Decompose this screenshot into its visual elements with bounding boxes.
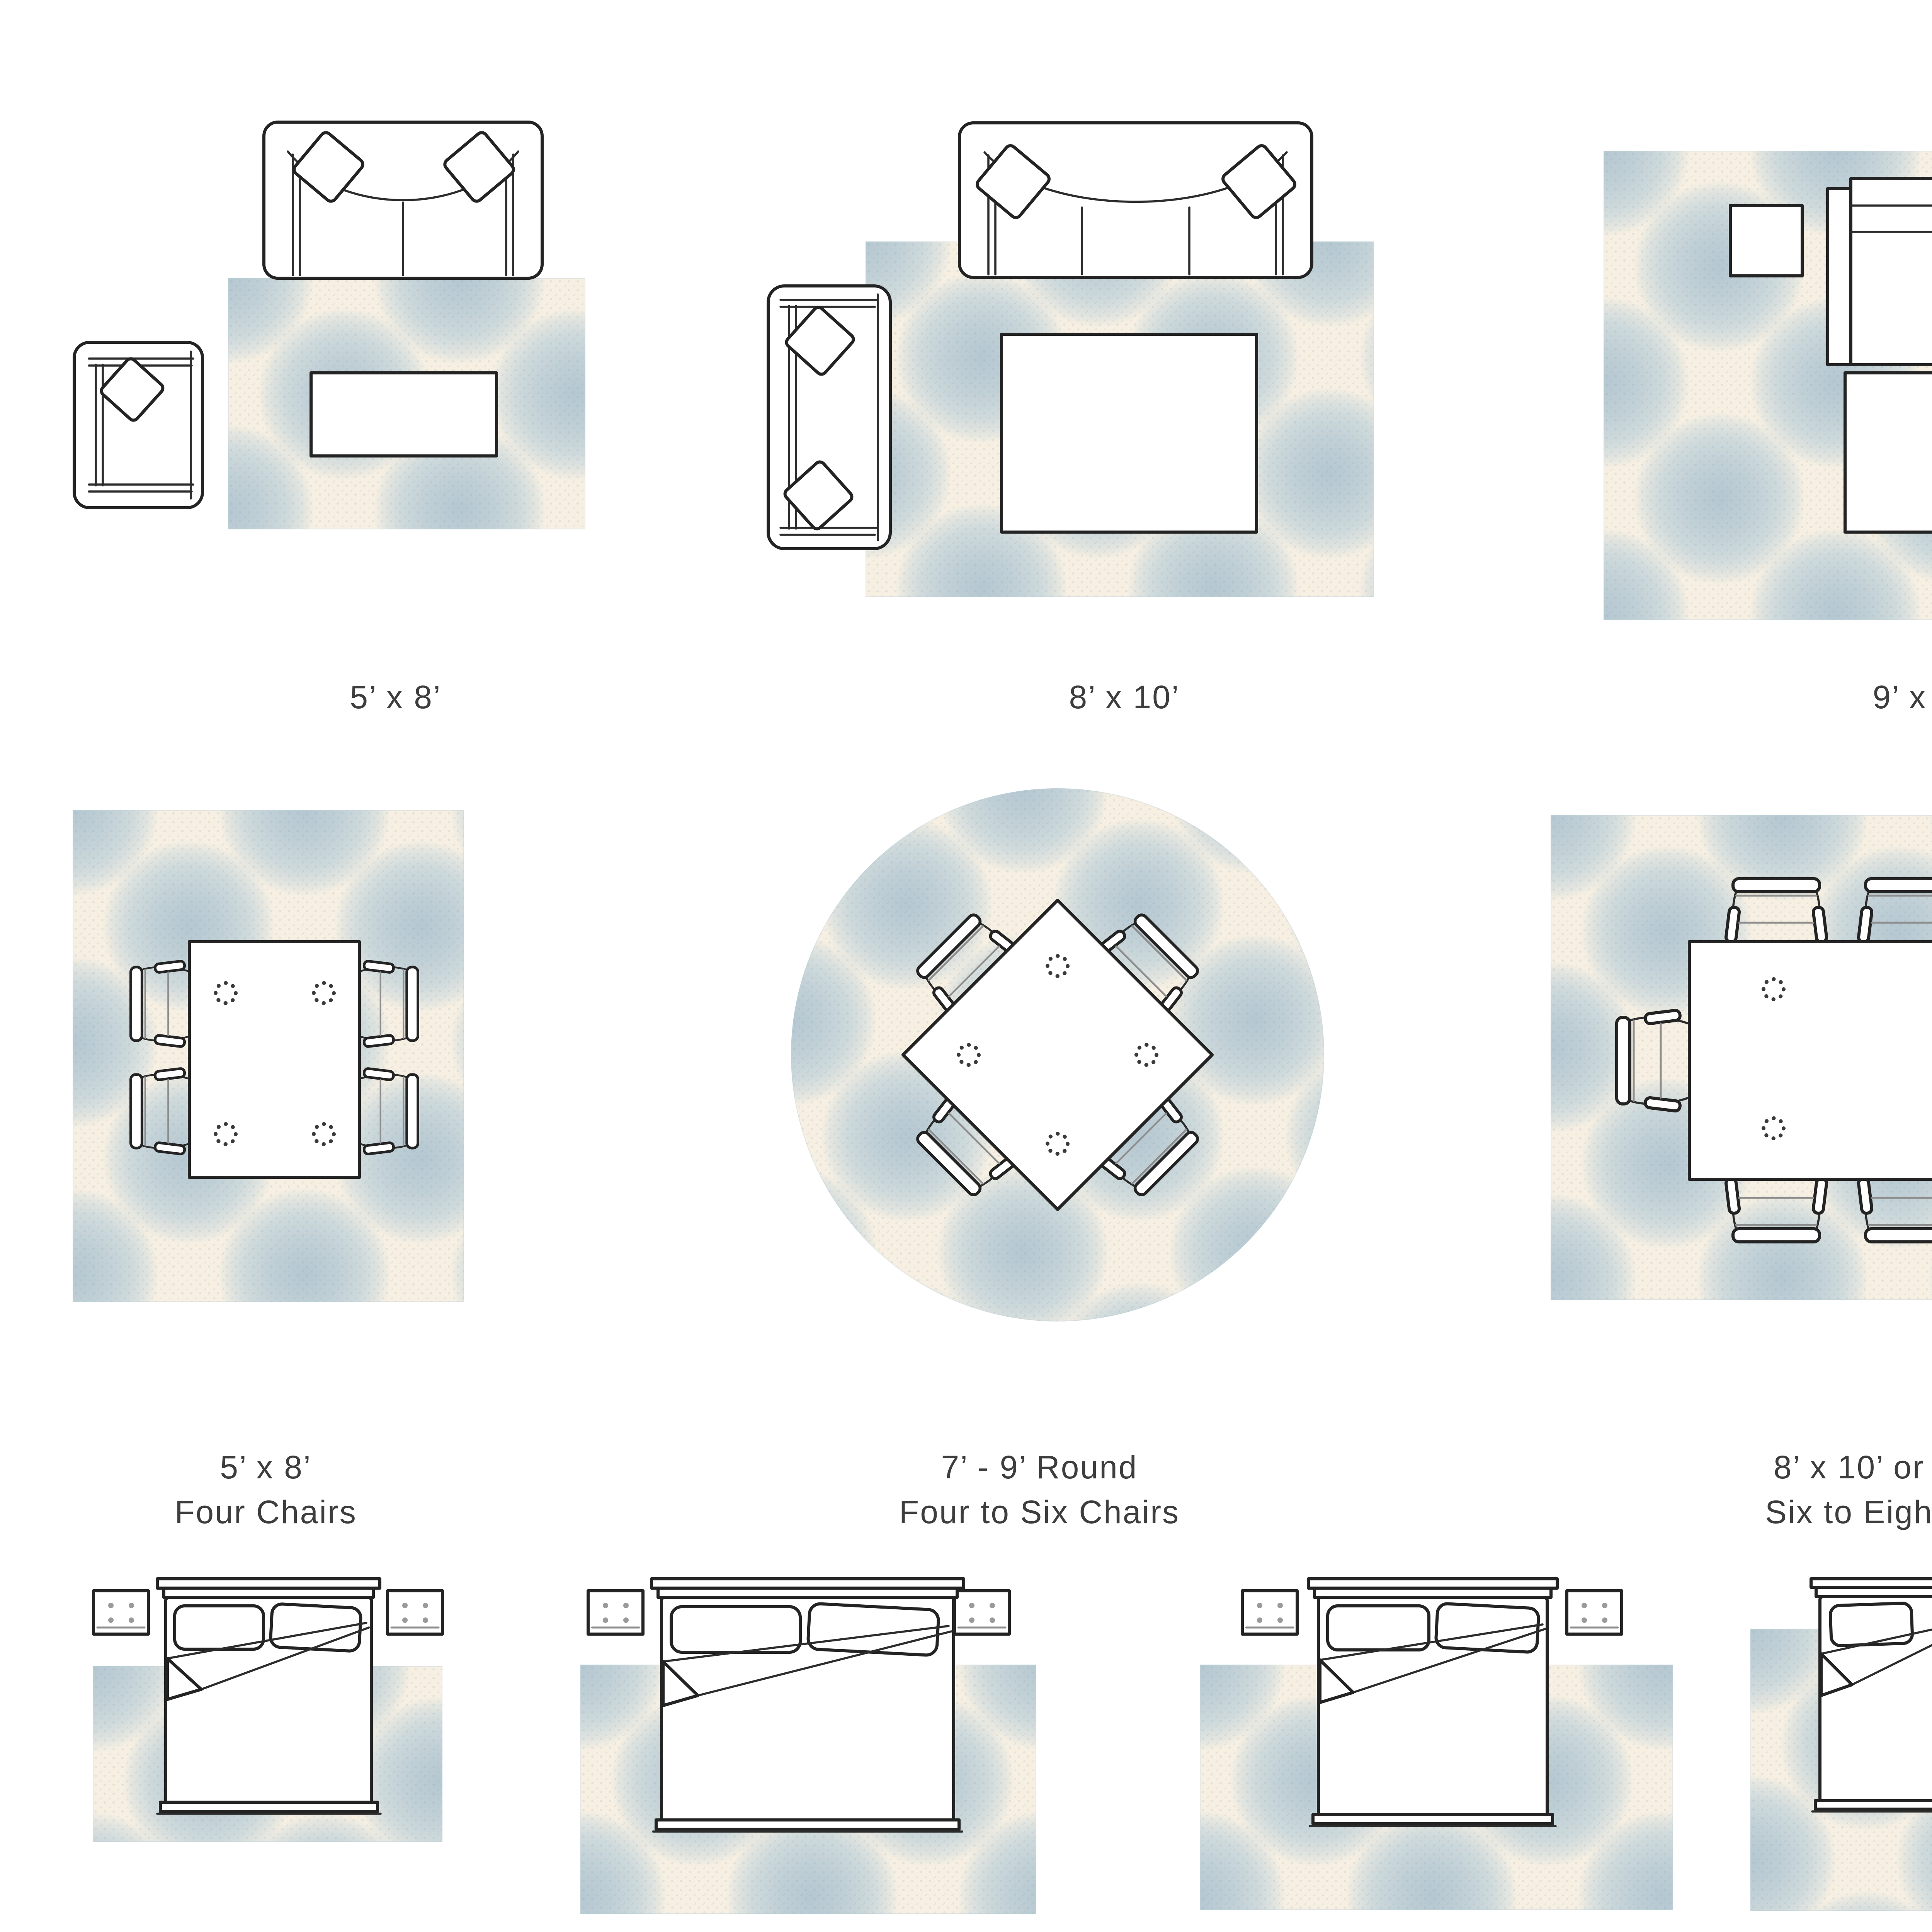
armchair-icon	[768, 286, 890, 549]
scene-bed-full	[94, 1579, 442, 1814]
side-table-icon	[1730, 206, 1802, 276]
sofa-icon	[264, 122, 542, 278]
scene-dining-round	[903, 900, 1212, 1209]
ottoman-icon	[1845, 373, 1932, 532]
nightstand-icon	[588, 1591, 643, 1634]
caption-dining-5x8: 5’ x 8’ Four Chairs	[0, 1445, 536, 1534]
furniture-illustrations	[0, 0, 1932, 1932]
scene-living-8x10	[768, 123, 1312, 549]
armchair-icon	[74, 342, 202, 508]
scene-living-5x8	[74, 122, 542, 508]
scene-dining-8x10	[1617, 879, 1932, 1242]
bed-icon	[157, 1579, 381, 1814]
caption-living-5x8: 5’ x 8’	[125, 675, 666, 719]
size-label: 8’ x 10’	[854, 675, 1395, 719]
caption-dining-round: 7’ - 9’ Round Four to Six Chairs	[769, 1445, 1310, 1534]
nightstand-icon	[954, 1591, 1009, 1634]
bed-icon	[1811, 1579, 1932, 1811]
nightstand-icon	[1242, 1591, 1297, 1634]
sofa-icon	[959, 123, 1312, 277]
bed-icon	[1308, 1579, 1557, 1826]
rug-size-guide: 5’ x 8’ 8’ x 10’ 9’ x 12’ 5’ x 8’ Four C…	[0, 0, 1932, 1932]
nightstand-icon	[94, 1591, 148, 1634]
size-label: 5’ x 8’	[125, 675, 666, 719]
sub-label: Four to Six Chairs	[769, 1490, 1310, 1534]
size-label: 5’ x 8’	[0, 1445, 536, 1490]
caption-living-9x12: 9’ x 12’	[1658, 675, 1932, 719]
caption-dining-8x10: 8’ x 10’ or 9’ x 12’ Six to Eight Chairs	[1639, 1445, 1932, 1534]
coffee-table-icon	[1002, 334, 1257, 532]
sub-label: Four Chairs	[0, 1490, 536, 1534]
scene-bed-king	[1242, 1579, 1622, 1826]
size-label: 9’ x 12’	[1658, 675, 1932, 719]
scene-bed-twin	[1811, 1579, 1932, 1811]
size-label: 8’ x 10’ or 9’ x 12’	[1639, 1445, 1932, 1490]
nightstand-icon	[1567, 1591, 1622, 1634]
sub-label: Six to Eight Chairs	[1639, 1490, 1932, 1534]
size-label: 7’ - 9’ Round	[769, 1445, 1310, 1490]
coffee-table-icon	[311, 373, 497, 456]
nightstand-icon	[388, 1591, 442, 1634]
scene-dining-5x8	[131, 942, 418, 1177]
caption-living-8x10: 8’ x 10’	[854, 675, 1395, 719]
scene-living-9x12	[1730, 179, 1932, 579]
bed-icon	[651, 1579, 964, 1832]
scene-bed-queen	[588, 1579, 1009, 1832]
dining-table-icon	[1689, 942, 1932, 1179]
dining-table-icon	[189, 942, 359, 1177]
